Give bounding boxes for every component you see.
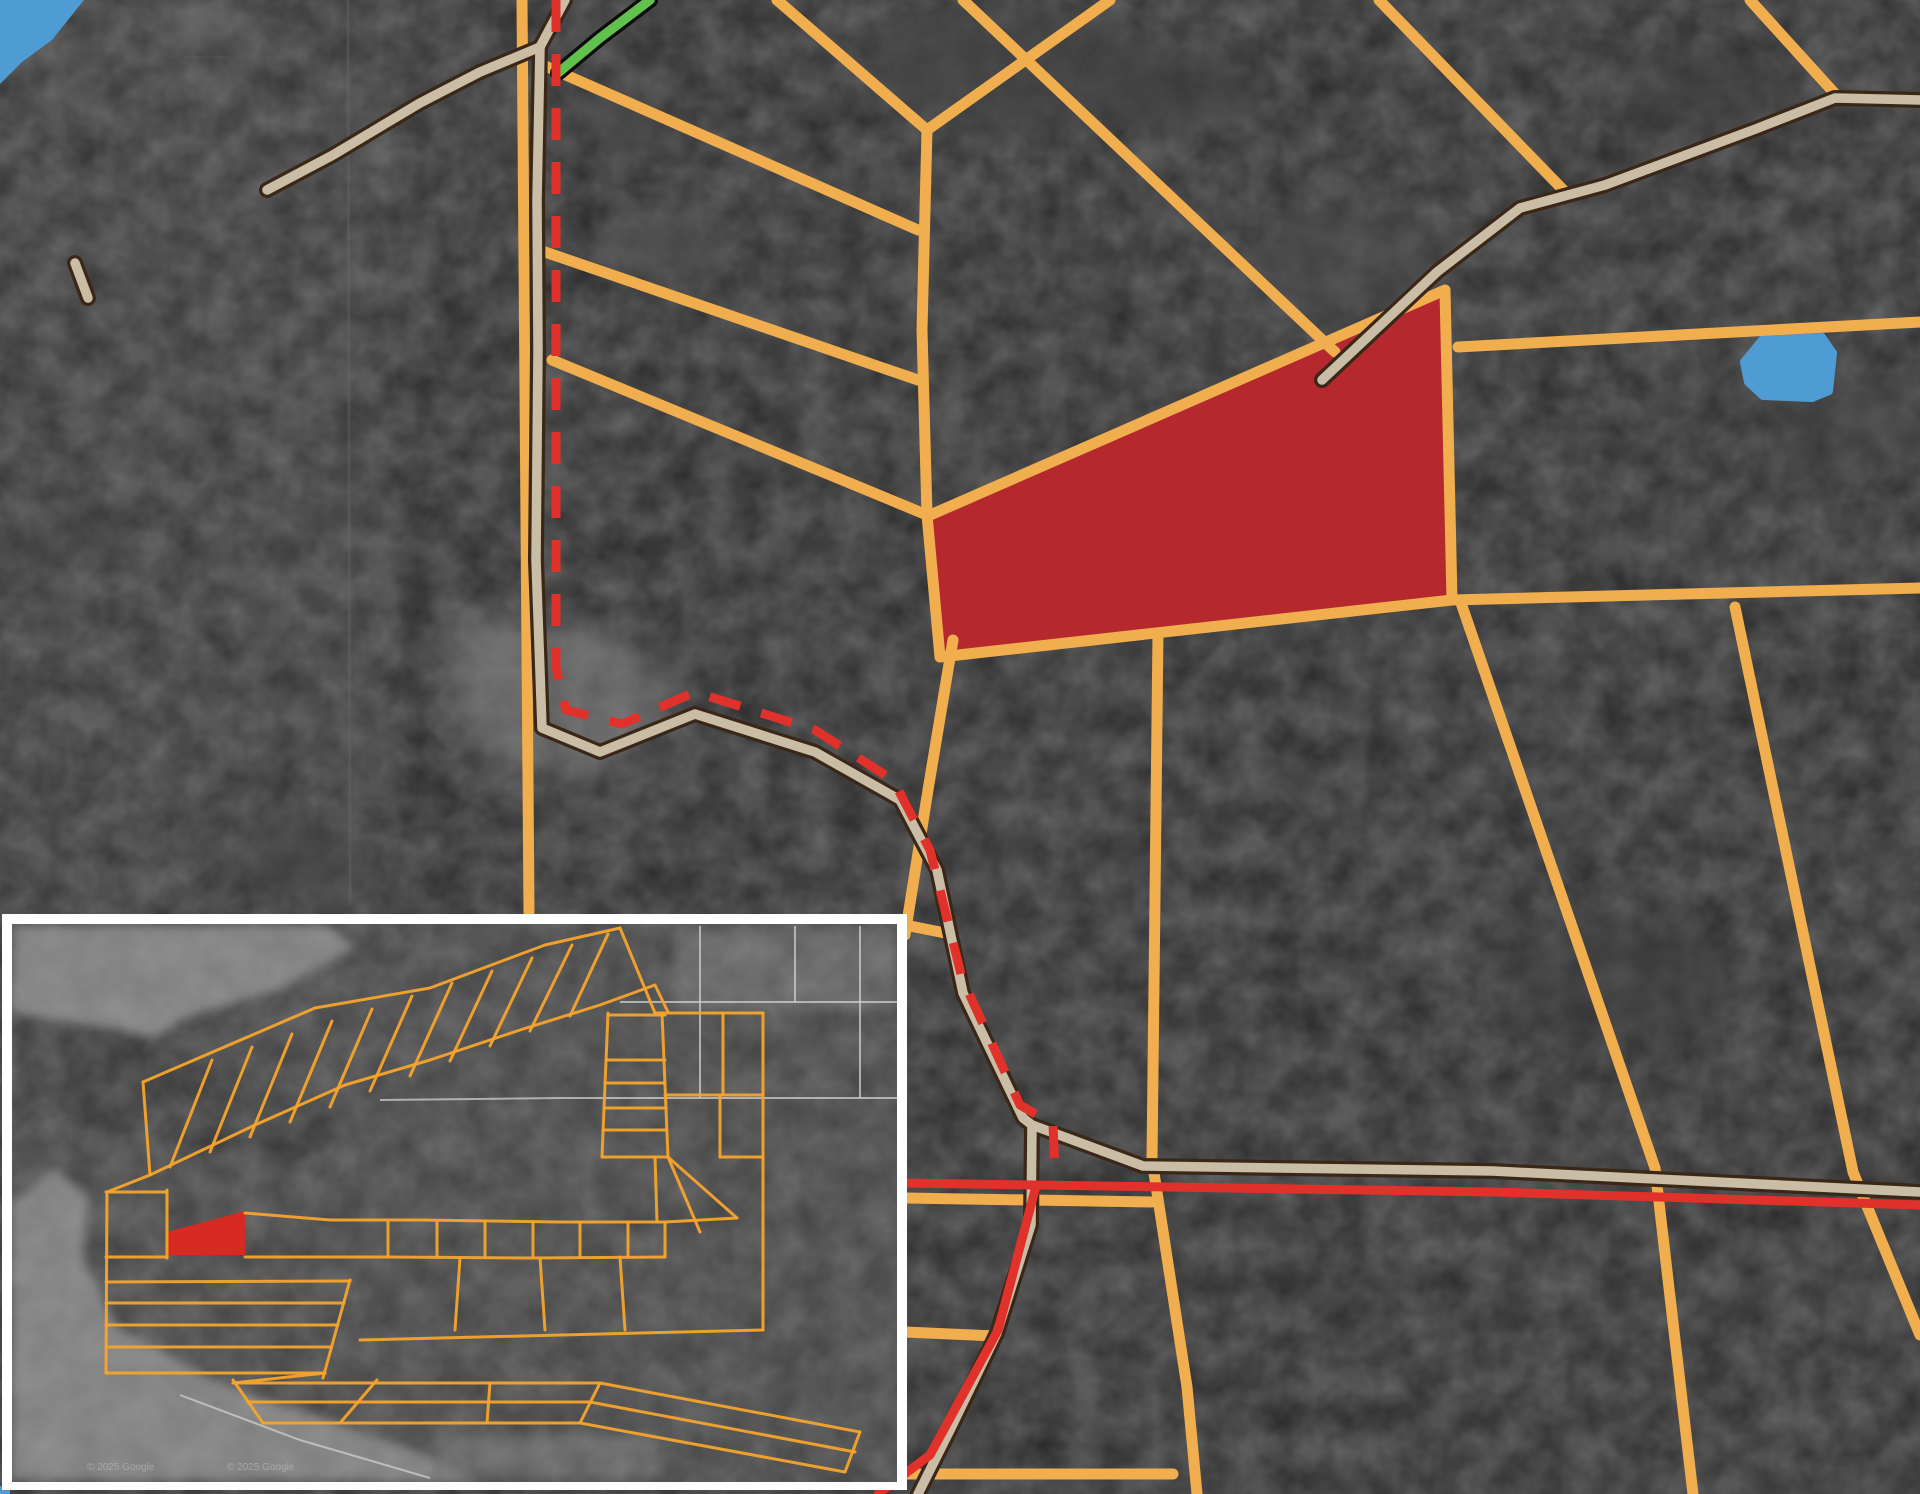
pond [1744,337,1833,398]
inset-content[interactable]: © 2025 Google© 2025 Google [12,924,897,1482]
inset-credit-text: © 2025 Google [227,1462,295,1473]
overview-inset-map[interactable]: © 2025 Google© 2025 Google [2,914,907,1490]
map-viewport[interactable]: © 2025 Google© 2025 Google [0,0,1920,1494]
inset-credit-text: © 2025 Google [87,1462,155,1473]
